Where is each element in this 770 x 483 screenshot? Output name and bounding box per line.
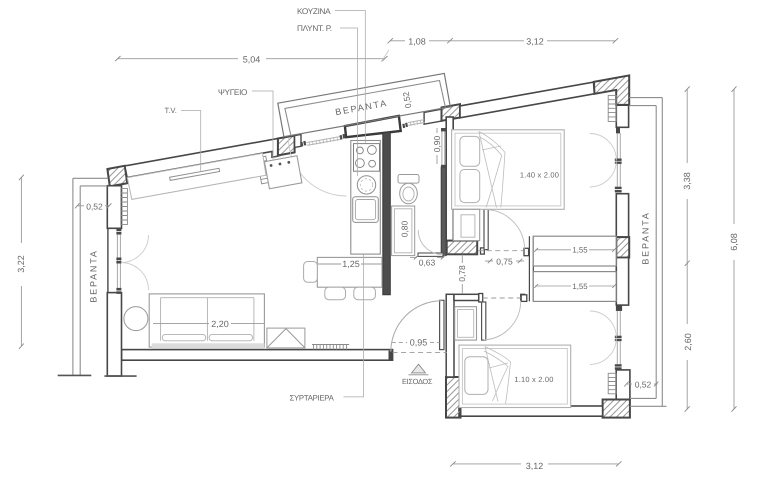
svg-text:3,22: 3,22 (16, 255, 26, 273)
svg-text:5,04: 5,04 (243, 54, 261, 64)
svg-text:1,25: 1,25 (342, 259, 360, 269)
svg-text:3,12: 3,12 (526, 461, 544, 471)
svg-text:2,60: 2,60 (683, 333, 693, 351)
svg-text:ΕΙΣΟΔΟΣ: ΕΙΣΟΔΟΣ (402, 377, 433, 386)
svg-text:ΚΟΥΖΙΝΑ: ΚΟΥΖΙΝΑ (297, 7, 331, 16)
svg-text:3,12: 3,12 (526, 36, 544, 46)
svg-text:0,52: 0,52 (635, 379, 652, 389)
svg-text:0,80: 0,80 (400, 220, 410, 237)
svg-text:ΒΕΡΑΝΤΑ: ΒΕΡΑΝΤΑ (89, 249, 99, 302)
svg-text:1.40 x 2.00: 1.40 x 2.00 (520, 170, 559, 179)
svg-text:ΠΛΥΝΤ. Ρ.: ΠΛΥΝΤ. Ρ. (297, 24, 332, 33)
svg-text:0,52: 0,52 (86, 201, 103, 211)
svg-text:0,75: 0,75 (496, 256, 513, 266)
svg-text:1,08: 1,08 (408, 36, 426, 46)
svg-text:6,08: 6,08 (729, 233, 739, 251)
svg-text:1.10 x 2.00: 1.10 x 2.00 (514, 375, 553, 384)
svg-text:0,63: 0,63 (419, 257, 436, 267)
svg-text:1,55: 1,55 (572, 282, 588, 291)
svg-text:2,20: 2,20 (211, 319, 229, 329)
svg-text:0,95: 0,95 (410, 337, 428, 347)
svg-text:ΒΕΡΑΝΤΑ: ΒΕΡΑΝΤΑ (641, 211, 651, 264)
svg-text:ΣΥΡΤΑΡΙΕΡΑ: ΣΥΡΤΑΡΙΕΡΑ (290, 393, 335, 402)
svg-text:0,90: 0,90 (432, 135, 442, 152)
svg-text:3,38: 3,38 (682, 172, 692, 190)
svg-text:1,55: 1,55 (572, 246, 588, 255)
svg-text:0,78: 0,78 (457, 265, 467, 282)
svg-text:T.V.: T.V. (165, 106, 177, 115)
svg-text:ΨΥΓΕΙΟ: ΨΥΓΕΙΟ (218, 88, 247, 97)
